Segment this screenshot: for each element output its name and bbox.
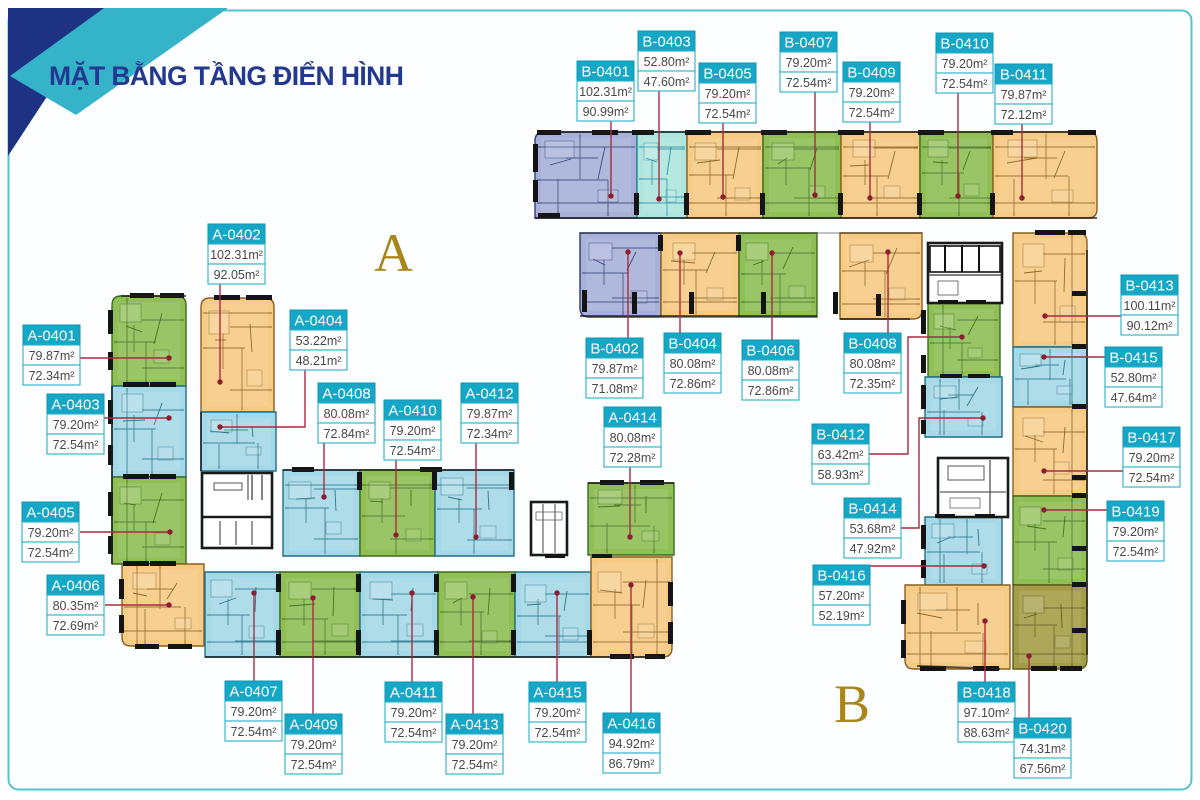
svg-text:B-0417: B-0417	[1127, 430, 1175, 447]
svg-text:A-0407: A-0407	[229, 684, 277, 701]
svg-text:79.20m²: 79.20m²	[705, 87, 751, 101]
svg-text:72.86m²: 72.86m²	[748, 384, 794, 398]
svg-text:71.08m²: 71.08m²	[592, 382, 638, 396]
svg-text:48.21m²: 48.21m²	[296, 354, 342, 368]
svg-text:B-0410: B-0410	[940, 36, 988, 53]
svg-text:58.93m²: 58.93m²	[818, 468, 864, 482]
svg-text:A-0412: A-0412	[465, 386, 513, 403]
svg-text:B-0412: B-0412	[816, 427, 864, 444]
svg-text:79.20m²: 79.20m²	[28, 526, 74, 540]
svg-text:63.42m²: 63.42m²	[818, 448, 864, 462]
svg-text:B-0416: B-0416	[817, 568, 865, 585]
svg-text:79.20m²: 79.20m²	[1129, 451, 1175, 465]
svg-text:A-0405: A-0405	[26, 505, 74, 522]
svg-text:72.69m²: 72.69m²	[53, 619, 99, 633]
svg-text:72.34m²: 72.34m²	[467, 427, 513, 441]
svg-text:79.20m²: 79.20m²	[786, 56, 832, 70]
svg-text:72.34m²: 72.34m²	[29, 369, 75, 383]
svg-text:72.54m²: 72.54m²	[452, 758, 498, 772]
svg-text:A: A	[374, 223, 413, 283]
svg-text:100.11m²: 100.11m²	[1124, 299, 1176, 313]
svg-text:79.20m²: 79.20m²	[535, 706, 581, 720]
svg-text:B: B	[834, 674, 870, 734]
svg-text:A-0404: A-0404	[294, 313, 342, 330]
svg-text:80.35m²: 80.35m²	[53, 599, 99, 613]
svg-text:74.31m²: 74.31m²	[1020, 742, 1066, 756]
svg-text:72.54m²: 72.54m²	[535, 726, 581, 740]
svg-text:B-0420: B-0420	[1018, 721, 1066, 738]
svg-text:94.92m²: 94.92m²	[609, 737, 655, 751]
svg-text:A-0414: A-0414	[608, 410, 656, 427]
svg-text:B-0406: B-0406	[746, 343, 794, 360]
svg-text:72.84m²: 72.84m²	[324, 427, 370, 441]
svg-text:92.05m²: 92.05m²	[214, 268, 260, 282]
svg-text:72.54m²: 72.54m²	[1113, 545, 1159, 559]
svg-text:79.20m²: 79.20m²	[849, 86, 895, 100]
svg-text:B-0404: B-0404	[668, 336, 716, 353]
svg-text:79.87m²: 79.87m²	[467, 407, 513, 421]
svg-text:72.28m²: 72.28m²	[610, 451, 656, 465]
svg-text:80.08m²: 80.08m²	[748, 364, 794, 378]
svg-text:B-0403: B-0403	[642, 34, 690, 51]
svg-text:72.35m²: 72.35m²	[850, 377, 896, 391]
svg-text:B-0401: B-0401	[581, 64, 629, 81]
svg-text:53.68m²: 53.68m²	[850, 522, 896, 536]
svg-text:A-0411: A-0411	[390, 685, 437, 702]
svg-text:B-0413: B-0413	[1125, 278, 1173, 295]
svg-text:72.54m²: 72.54m²	[28, 546, 74, 560]
svg-text:80.08m²: 80.08m²	[324, 407, 370, 421]
svg-text:79.20m²: 79.20m²	[1113, 525, 1159, 539]
svg-text:B-0415: B-0415	[1109, 350, 1157, 367]
svg-text:90.99m²: 90.99m²	[583, 105, 629, 119]
svg-text:B-0405: B-0405	[703, 66, 751, 83]
svg-text:72.12m²: 72.12m²	[1001, 108, 1047, 122]
svg-text:A-0406: A-0406	[51, 578, 99, 595]
svg-text:A-0413: A-0413	[450, 717, 498, 734]
svg-text:47.92m²: 47.92m²	[850, 542, 896, 556]
svg-text:79.87m²: 79.87m²	[29, 349, 75, 363]
svg-text:72.54m²: 72.54m²	[53, 438, 99, 452]
svg-text:72.54m²: 72.54m²	[390, 444, 436, 458]
svg-text:B-0418: B-0418	[962, 685, 1010, 702]
svg-text:79.87m²: 79.87m²	[1001, 88, 1047, 102]
svg-text:A-0402: A-0402	[212, 227, 260, 244]
svg-text:72.54m²: 72.54m²	[1129, 471, 1175, 485]
svg-text:A-0415: A-0415	[533, 685, 581, 702]
svg-text:80.08m²: 80.08m²	[610, 431, 656, 445]
svg-text:57.20m²: 57.20m²	[819, 589, 865, 603]
svg-text:80.08m²: 80.08m²	[670, 357, 716, 371]
svg-text:52.80m²: 52.80m²	[644, 55, 690, 69]
svg-text:B-0419: B-0419	[1111, 504, 1159, 521]
svg-text:52.19m²: 52.19m²	[819, 609, 865, 623]
svg-text:72.54m²: 72.54m²	[849, 106, 895, 120]
svg-text:86.79m²: 86.79m²	[609, 757, 655, 771]
svg-text:72.54m²: 72.54m²	[705, 107, 751, 121]
svg-text:79.20m²: 79.20m²	[391, 706, 437, 720]
svg-text:B-0408: B-0408	[848, 336, 896, 353]
svg-text:52.80m²: 52.80m²	[1111, 371, 1157, 385]
svg-text:A-0410: A-0410	[388, 403, 436, 420]
svg-text:67.56m²: 67.56m²	[1020, 762, 1066, 776]
svg-text:A-0408: A-0408	[322, 386, 370, 403]
svg-text:79.20m²: 79.20m²	[291, 738, 337, 752]
svg-text:A-0409: A-0409	[289, 717, 337, 734]
svg-text:A-0403: A-0403	[51, 397, 99, 414]
svg-text:88.63m²: 88.63m²	[964, 726, 1010, 740]
svg-text:A-0416: A-0416	[607, 716, 655, 733]
svg-text:72.86m²: 72.86m²	[670, 377, 716, 391]
svg-text:79.20m²: 79.20m²	[390, 424, 436, 438]
svg-text:47.60m²: 47.60m²	[644, 75, 690, 89]
svg-text:47.64m²: 47.64m²	[1111, 391, 1157, 405]
svg-text:MẶT BẰNG TẦNG ĐIỂN HÌNH: MẶT BẰNG TẦNG ĐIỂN HÌNH	[49, 61, 403, 91]
svg-text:B-0402: B-0402	[590, 341, 638, 358]
svg-text:A-0401: A-0401	[27, 328, 75, 345]
svg-text:72.54m²: 72.54m²	[942, 77, 988, 91]
svg-text:79.20m²: 79.20m²	[942, 57, 988, 71]
svg-text:102.31m²: 102.31m²	[210, 248, 263, 262]
svg-text:72.54m²: 72.54m²	[291, 758, 337, 772]
svg-text:97.10m²: 97.10m²	[964, 706, 1010, 720]
svg-text:53.22m²: 53.22m²	[296, 334, 342, 348]
svg-text:72.54m²: 72.54m²	[391, 726, 437, 740]
svg-text:79.20m²: 79.20m²	[231, 705, 277, 719]
svg-text:90.12m²: 90.12m²	[1127, 319, 1173, 333]
svg-text:B-0407: B-0407	[784, 35, 832, 52]
svg-text:79.87m²: 79.87m²	[592, 362, 638, 376]
svg-text:79.20m²: 79.20m²	[53, 418, 99, 432]
svg-text:102.31m²: 102.31m²	[579, 85, 632, 99]
svg-text:72.54m²: 72.54m²	[231, 725, 277, 739]
svg-text:B-0414: B-0414	[848, 501, 896, 518]
svg-text:B-0409: B-0409	[847, 65, 895, 82]
svg-text:80.08m²: 80.08m²	[850, 357, 896, 371]
svg-text:79.20m²: 79.20m²	[452, 738, 498, 752]
svg-text:B-0411: B-0411	[1000, 67, 1047, 84]
svg-text:72.54m²: 72.54m²	[786, 76, 832, 90]
